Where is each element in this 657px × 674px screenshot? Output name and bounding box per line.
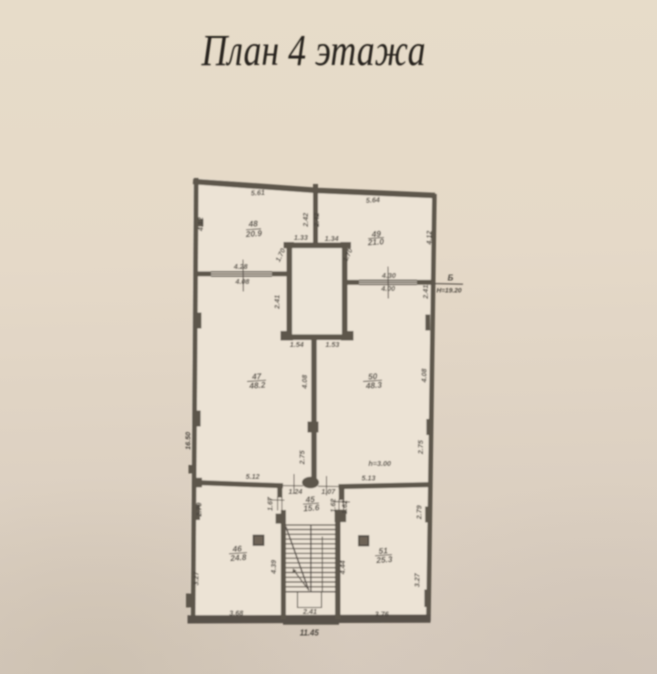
svg-text:Б: Б — [448, 274, 454, 283]
svg-text:16.50: 16.50 — [184, 432, 193, 450]
svg-text:5.13: 5.13 — [362, 473, 376, 482]
svg-text:4.12: 4.12 — [196, 217, 205, 232]
svg-text:1.62: 1.62 — [340, 500, 349, 514]
svg-text:1.67: 1.67 — [265, 496, 274, 511]
svg-text:2.41: 2.41 — [273, 295, 282, 310]
svg-text:Н=19.20: Н=19.20 — [436, 288, 461, 295]
svg-text:4.08: 4.08 — [300, 375, 309, 390]
svg-text:2.75: 2.75 — [416, 439, 425, 455]
svg-text:5.64: 5.64 — [366, 195, 380, 205]
svg-text:2.42: 2.42 — [312, 213, 321, 228]
svg-text:48.2: 48.2 — [248, 380, 266, 391]
svg-text:1.07: 1.07 — [321, 487, 336, 496]
svg-text:1.33: 1.33 — [294, 233, 308, 242]
svg-text:1.54: 1.54 — [290, 340, 304, 349]
svg-text:3.76: 3.76 — [375, 610, 390, 619]
svg-text:24.8: 24.8 — [229, 552, 247, 563]
svg-text:2.41: 2.41 — [302, 607, 317, 616]
svg-text:48.3: 48.3 — [364, 380, 382, 391]
svg-text:21.0: 21.0 — [366, 236, 384, 247]
svg-text:3.27: 3.27 — [191, 571, 200, 586]
svg-text:4.44: 4.44 — [338, 560, 347, 575]
svg-text:2.41: 2.41 — [421, 285, 430, 300]
svg-text:4.30: 4.30 — [381, 271, 396, 280]
svg-text:4.28: 4.28 — [233, 262, 248, 271]
svg-text:20.9: 20.9 — [244, 228, 262, 239]
svg-text:2.79: 2.79 — [195, 503, 204, 518]
svg-text:2.79: 2.79 — [414, 505, 423, 520]
svg-text:3.27: 3.27 — [413, 572, 422, 587]
svg-text:4.39: 4.39 — [269, 560, 278, 575]
svg-text:5.12: 5.12 — [246, 472, 260, 481]
svg-text:3.68: 3.68 — [229, 608, 243, 617]
svg-text:1.24: 1.24 — [288, 487, 302, 496]
svg-text:h=3.00: h=3.00 — [368, 459, 391, 468]
svg-text:4.00: 4.00 — [380, 284, 395, 293]
svg-text:1.53: 1.53 — [325, 340, 339, 349]
svg-text:2.42: 2.42 — [301, 213, 310, 228]
svg-text:4.12: 4.12 — [425, 231, 434, 246]
svg-text:11.45: 11.45 — [300, 628, 320, 637]
svg-text:2.75: 2.75 — [298, 449, 307, 465]
svg-text:5.61: 5.61 — [251, 188, 265, 198]
svg-text:4.08: 4.08 — [419, 369, 428, 384]
svg-text:25.3: 25.3 — [375, 554, 393, 565]
svg-text:План 4 этажа: План 4 этажа — [201, 26, 426, 75]
svg-text:1.34: 1.34 — [325, 234, 339, 243]
svg-text:4.08: 4.08 — [234, 277, 249, 286]
svg-text:1.62: 1.62 — [329, 499, 338, 513]
svg-text:15.6: 15.6 — [303, 502, 320, 513]
